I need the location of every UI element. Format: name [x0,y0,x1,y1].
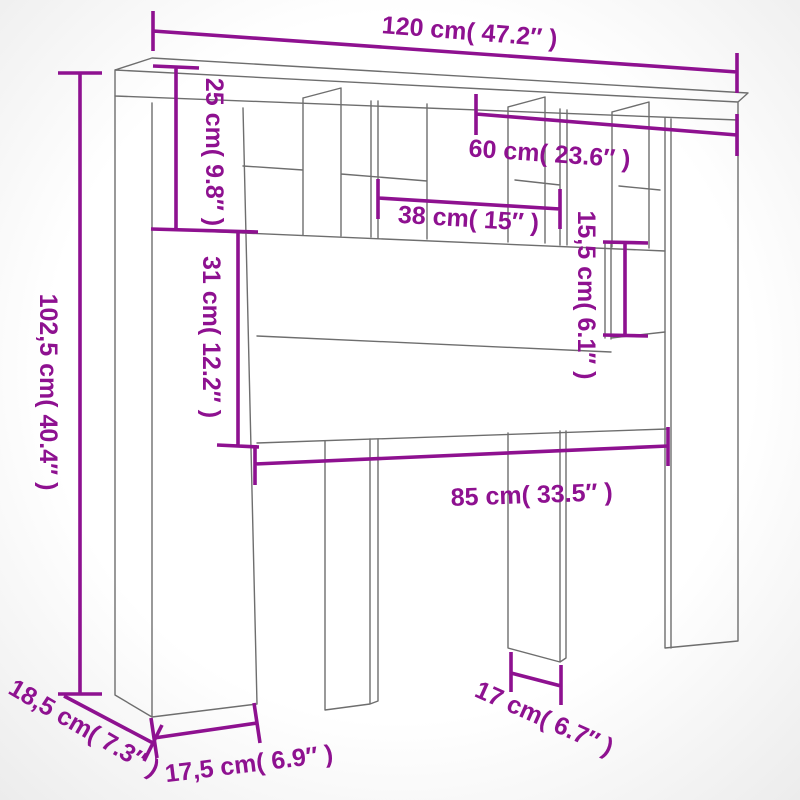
dimension-front-foot-width: 17,5 cm( 6.9″ ) [151,703,335,788]
front-legs [325,431,566,710]
dimension-front-foot-width-label: 17,5 cm( 6.9″ ) [163,740,334,788]
dimension-panel-height-label: 31 cm( 12.2″ ) [197,256,225,418]
dimension-top-width: 120 cm( 47.2″ ) [153,11,737,93]
dimension-lower-width-label: 85 cm( 33.5″ ) [450,478,613,512]
dimension-top-width-label: 120 cm( 47.2″ ) [381,11,559,53]
dimension-right-shelf-height-line [603,242,648,336]
dimension-middle-leg-width-label: 17 cm( 6.7″ ) [471,676,618,762]
dimension-upper-row-height-label: 25 cm( 9.8″ ) [200,78,228,226]
dimension-right-shelf-height-label: 15,5 cm( 6.1″ ) [572,210,600,379]
dimension-middle-leg-width: 17 cm( 6.7″ ) [471,652,618,762]
dimension-right-shelf-height: 15,5 cm( 6.1″ ) [572,210,648,379]
left-side-column [115,96,257,717]
dimension-middle-cubby-width: 38 cm( 15″ ) [378,179,560,237]
right-side-panel [665,118,738,648]
dimension-total-height-line [58,73,102,694]
dimension-right-section-width-label: 60 cm( 23.6″ ) [468,134,632,173]
headboard-panels [257,244,667,443]
dimension-total-height-label: 102,5 cm( 40.4″ ) [34,294,62,491]
dimension-total-height: 102,5 cm( 40.4″ ) [34,73,102,694]
dimension-side-foot-depth-label: 18,5 cm( 7.3″ ) [4,674,164,783]
dimension-lower-width: 85 cm( 33.5″ ) [255,427,668,512]
dimension-side-foot-depth: 18,5 cm( 7.3″ ) [4,674,164,783]
diagram-svg: 120 cm( 47.2″ ) 25 cm( 9.8″ ) 60 cm( 23.… [0,0,800,800]
dimension-upper-row-height: 25 cm( 9.8″ ) [151,66,258,232]
